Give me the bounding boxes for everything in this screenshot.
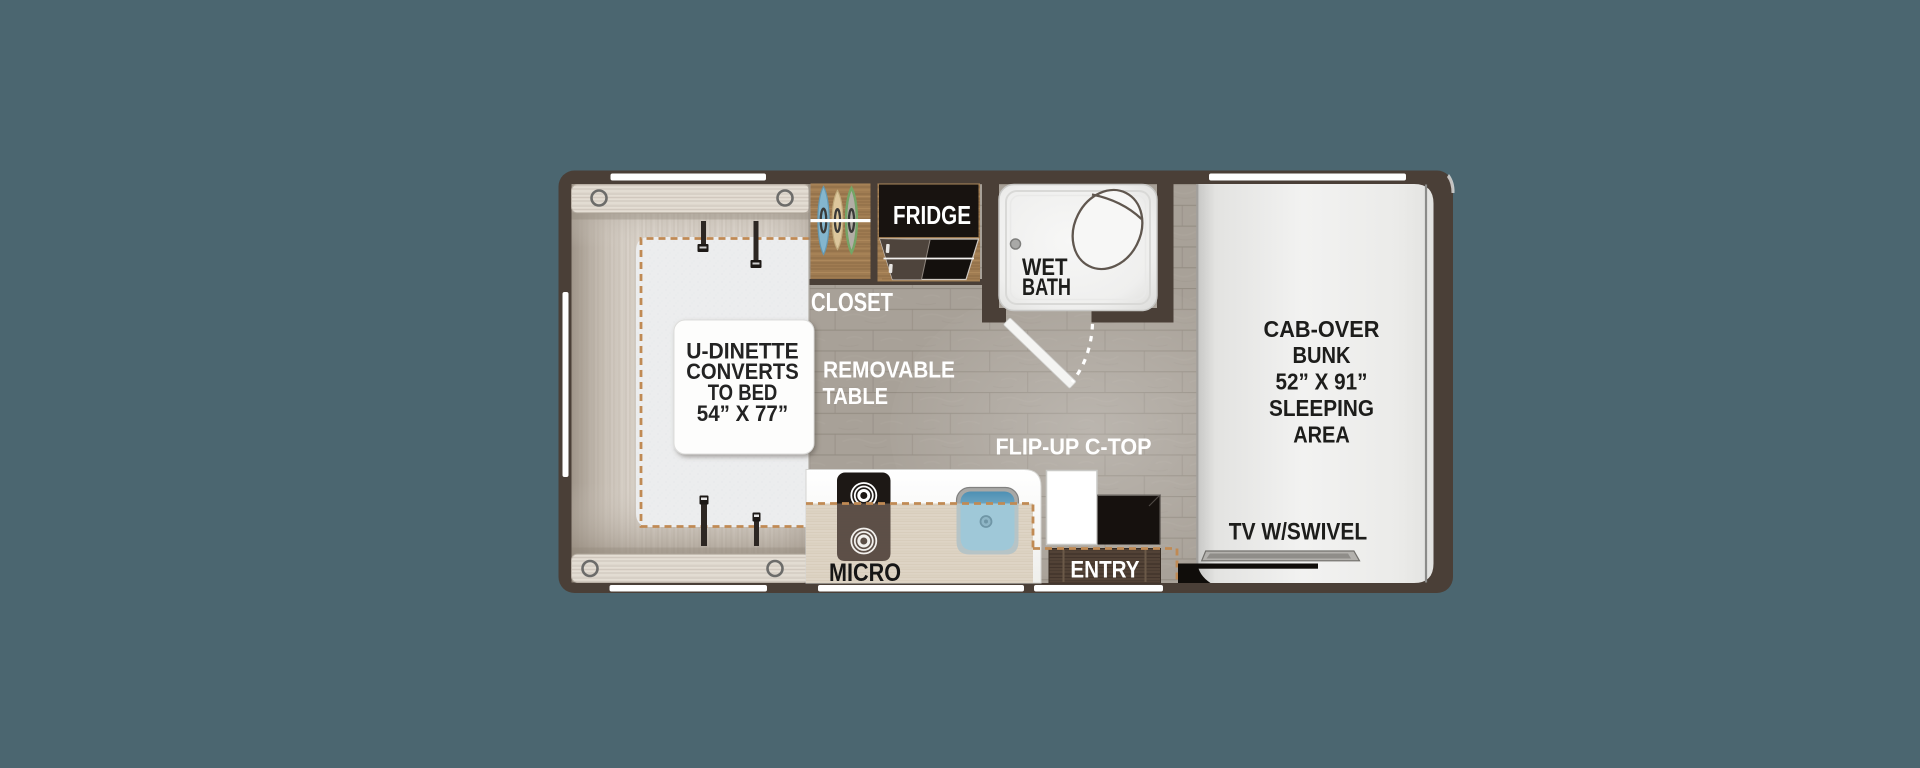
svg-text:BUNK: BUNK xyxy=(1293,342,1351,368)
svg-text:REMOVABLE: REMOVABLE xyxy=(823,357,955,383)
svg-text:ENTRY: ENTRY xyxy=(1070,557,1139,584)
svg-text:BATH: BATH xyxy=(1022,274,1071,301)
svg-text:CAB-OVER: CAB-OVER xyxy=(1264,316,1380,342)
svg-text:54” X 77”: 54” X 77” xyxy=(697,401,788,426)
svg-text:TV W/SWIVEL: TV W/SWIVEL xyxy=(1229,519,1367,546)
svg-text:FLIP-UP C-TOP: FLIP-UP C-TOP xyxy=(996,434,1152,460)
svg-text:FRIDGE: FRIDGE xyxy=(893,200,971,230)
svg-text:AREA: AREA xyxy=(1293,422,1350,448)
svg-text:52” X 91”: 52” X 91” xyxy=(1276,369,1368,395)
svg-text:TABLE: TABLE xyxy=(823,383,889,409)
svg-text:SLEEPING: SLEEPING xyxy=(1269,395,1374,421)
svg-text:CLOSET: CLOSET xyxy=(811,287,893,317)
svg-text:MICRO: MICRO xyxy=(829,559,901,587)
